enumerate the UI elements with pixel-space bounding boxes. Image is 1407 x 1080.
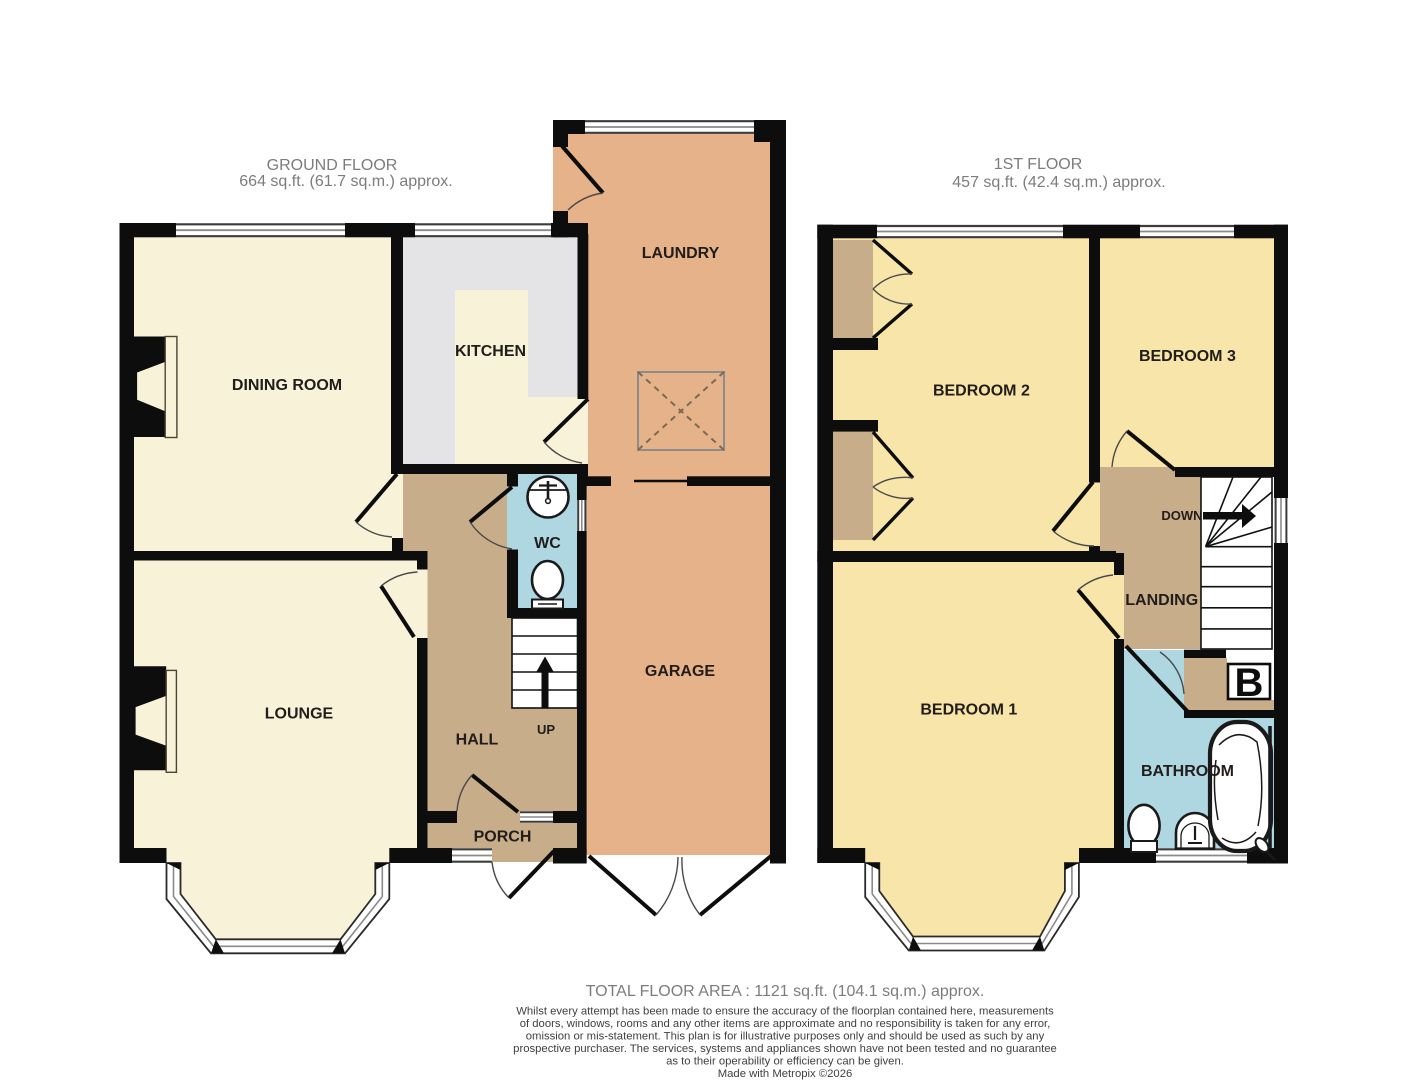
svg-text:omission or mis-statement. Thi: omission or mis-statement. This plan is …	[526, 1031, 1045, 1043]
svg-text:KITCHEN: KITCHEN	[455, 343, 526, 360]
svg-text:GARAGE: GARAGE	[645, 663, 716, 680]
svg-text:PORCH: PORCH	[474, 829, 532, 846]
svg-text:Made with Metropix ©2026: Made with Metropix ©2026	[718, 1068, 853, 1080]
svg-text:BEDROOM 3: BEDROOM 3	[1139, 348, 1236, 365]
svg-text:BATHROOM: BATHROOM	[1141, 763, 1234, 780]
svg-text:HALL: HALL	[456, 732, 499, 749]
svg-text:GROUND FLOOR: GROUND FLOOR	[267, 157, 398, 174]
svg-text:LAUNDRY: LAUNDRY	[642, 245, 720, 262]
svg-text:UP: UP	[537, 722, 555, 737]
svg-text:LANDING: LANDING	[1125, 592, 1198, 609]
svg-text:Whilst every attempt has been: Whilst every attempt has been made to en…	[516, 1006, 1054, 1018]
svg-text:LOUNGE: LOUNGE	[265, 706, 334, 723]
svg-text:457 sq.ft. (42.4 sq.m.) approx: 457 sq.ft. (42.4 sq.m.) approx.	[952, 174, 1165, 191]
svg-text:TOTAL FLOOR AREA : 1121 sq.ft.: TOTAL FLOOR AREA : 1121 sq.ft. (104.1 sq…	[586, 983, 985, 1000]
svg-text:of doors, windows, rooms and a: of doors, windows, rooms and any other i…	[520, 1018, 1051, 1030]
svg-text:664 sq.ft. (61.7 sq.m.) approx: 664 sq.ft. (61.7 sq.m.) approx.	[239, 173, 452, 190]
svg-text:BEDROOM 1: BEDROOM 1	[920, 702, 1017, 719]
svg-text:DOWN: DOWN	[1161, 508, 1202, 523]
svg-text:DINING ROOM: DINING ROOM	[232, 377, 342, 394]
svg-text:as to their operability or eff: as to their operability or efficiency ca…	[666, 1056, 904, 1068]
svg-text:BEDROOM 2: BEDROOM 2	[933, 383, 1030, 400]
svg-text:1ST FLOOR: 1ST FLOOR	[994, 156, 1083, 173]
svg-text:prospective purchaser. The ser: prospective purchaser. The services, sys…	[513, 1043, 1057, 1055]
svg-text:B: B	[1235, 661, 1264, 705]
svg-text:WC: WC	[534, 535, 561, 552]
